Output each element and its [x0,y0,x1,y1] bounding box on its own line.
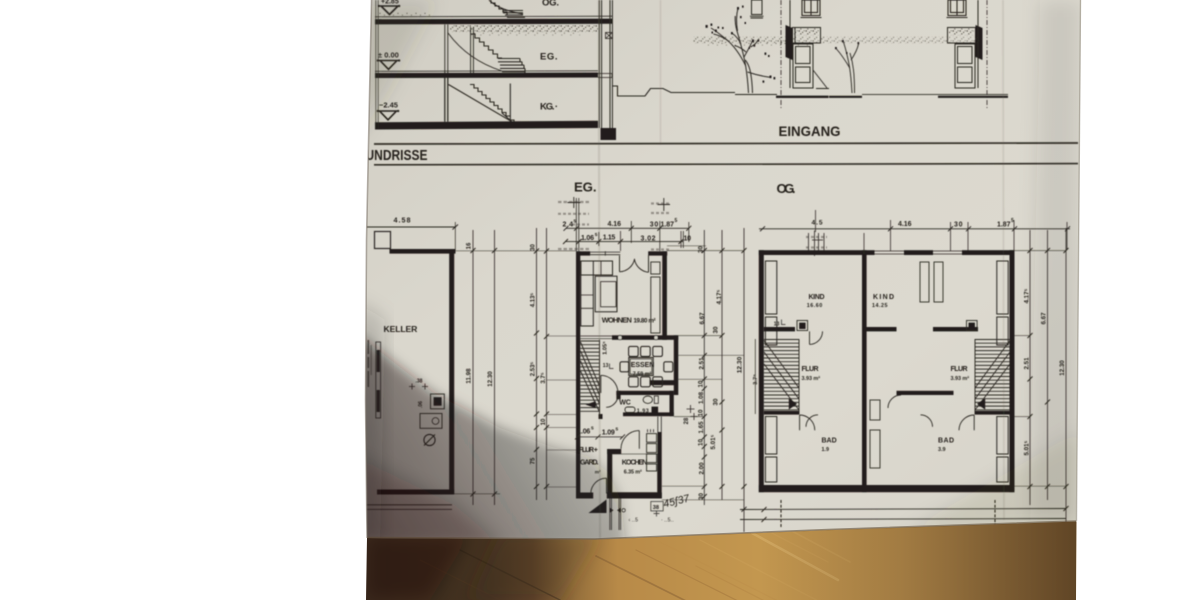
svg-text:19.80 m²: 19.80 m² [634,318,656,325]
svg-text:10: 10 [541,418,547,425]
svg-text:4.16: 4.16 [898,221,912,228]
svg-text:1.87: 1.87 [661,221,675,228]
svg-text:FLUR +: FLUR + [579,447,598,454]
svg-text:BAD: BAD [938,438,954,445]
svg-text:KIND: KIND [873,294,894,301]
svg-text:12.30: 12.30 [487,371,494,387]
svg-text:2.51: 2.51 [1024,357,1031,370]
svg-text:5: 5 [1011,218,1014,224]
svg-text:EG.: EG. [574,179,597,194]
svg-text:4.16: 4.16 [608,221,622,228]
svg-text:10: 10 [697,439,704,446]
svg-text:KG. ·: KG. · [540,102,558,113]
svg-text:7.59 m²: 7.59 m² [633,371,652,377]
svg-text:1.09: 1.09 [602,429,615,436]
svg-text:10: 10 [697,380,704,387]
svg-text:FLUR: FLUR [951,366,968,373]
svg-text:2.00: 2.00 [699,462,706,475]
svg-text:3.9: 3.9 [938,447,946,453]
svg-text:4.17⁵: 4.17⁵ [1024,288,1031,303]
svg-text:11.98: 11.98 [466,368,473,384]
svg-text:4.17⁵: 4.17⁵ [716,289,723,304]
svg-text:1.15: 1.15 [603,235,616,242]
svg-text:4.13⁵: 4.13⁵ [531,293,537,308]
svg-text:2.51: 2.51 [699,357,706,370]
svg-text:KIND: KIND [809,294,825,301]
svg-text:16.60: 16.60 [807,303,823,309]
svg-text:1.93: 1.93 [637,408,649,414]
svg-text:UNDRISSE: UNDRISSE [366,148,428,164]
svg-text:5.01⁵: 5.01⁵ [710,434,717,449]
svg-text:5.01⁵: 5.01⁵ [1024,440,1031,455]
svg-text:ESSEN: ESSEN [631,362,655,369]
svg-text:12.30: 12.30 [736,356,743,373]
svg-text:10: 10 [697,409,704,416]
svg-text:3.93 m²: 3.93 m² [951,376,970,382]
svg-text:30: 30 [954,221,963,228]
svg-text:2.53⁵: 2.53⁵ [531,362,537,377]
svg-text:30: 30 [713,398,720,405]
svg-text:3.7⁵: 3.7⁵ [541,372,547,383]
svg-text:1.05⁵: 1.05⁵ [602,341,608,355]
svg-text:30: 30 [713,326,720,333]
svg-text:BAD: BAD [822,438,837,445]
svg-text:5: 5 [675,218,678,224]
svg-text:EINGANG: EINGANG [779,124,841,140]
svg-text:13: 13 [774,322,780,328]
svg-text:EG.: EG. [540,52,558,63]
svg-text:OG.: OG. [542,0,559,9]
svg-text:16: 16 [467,242,473,249]
svg-text:28: 28 [684,417,690,424]
svg-text:5: 5 [595,232,598,238]
svg-text:30: 30 [650,222,659,229]
svg-text:FLUR: FLUR [802,366,819,373]
svg-text:5: 5 [616,426,619,432]
svg-text:1.65: 1.65 [698,421,705,434]
svg-text:3.7⁵: 3.7⁵ [753,374,759,385]
svg-text:6.67: 6.67 [699,312,706,325]
svg-text:1.06: 1.06 [581,235,594,242]
svg-text:14.25: 14.25 [872,303,888,309]
svg-text:WOHNEN: WOHNEN [602,316,632,325]
svg-text:30: 30 [531,244,537,251]
svg-text:−2.45: −2.45 [379,101,398,110]
svg-text:10: 10 [684,235,692,242]
svg-text:4.5: 4.5 [812,219,823,226]
svg-text:1.08: 1.08 [698,391,705,404]
svg-text:· ‥5‥: · ‥5‥ [661,518,674,524]
svg-text:4.58: 4.58 [394,216,411,225]
svg-text:OG.: OG. [777,181,796,196]
svg-text:13: 13 [603,363,609,369]
svg-text:3.93 m²: 3.93 m² [802,376,821,382]
svg-text:KOCHEN: KOCHEN [622,457,648,466]
svg-text:‹ ‥5: ‹ ‥5 [629,518,639,524]
svg-text:1.9: 1.9 [822,447,830,453]
svg-text:KELLER: KELLER [384,324,419,334]
svg-text:6.35 m²: 6.35 m² [624,470,642,476]
svg-text:WC: WC [619,400,631,407]
svg-text:30: 30 [697,246,704,253]
svg-text:1.06: 1.06 [577,428,590,435]
svg-text:5: 5 [591,425,594,431]
svg-text:30: 30 [698,493,705,500]
svg-text:38: 38 [653,505,659,511]
